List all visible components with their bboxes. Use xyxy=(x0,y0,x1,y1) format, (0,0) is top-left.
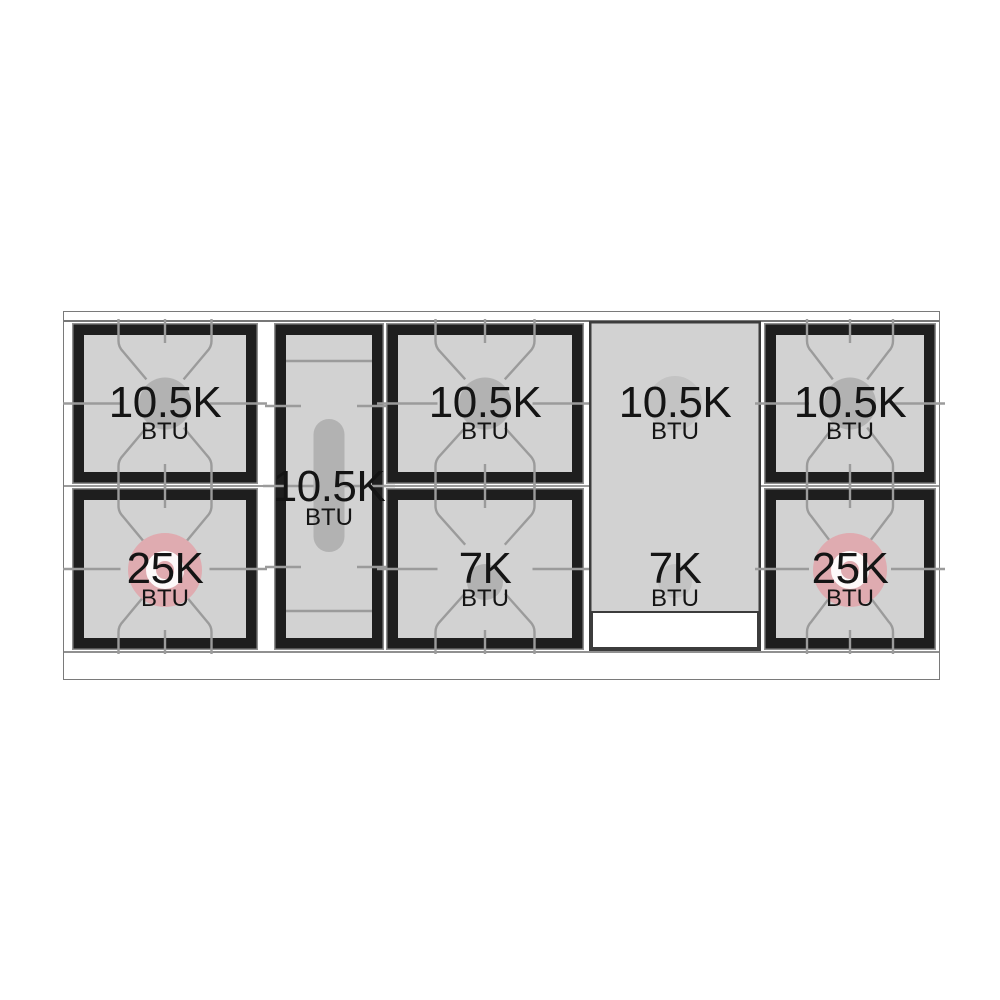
page: 10.5K BTU 25K BTU 10.5K BTU 10.5K BTU 7K… xyxy=(0,0,1000,1000)
burner-btu-unit: BTU xyxy=(95,587,235,611)
burner-btu-unit: BTU xyxy=(415,420,555,444)
burner-btu-unit: BTU xyxy=(780,420,920,444)
burner-btu-unit: BTU xyxy=(259,506,399,530)
burner-btu-unit: BTU xyxy=(415,587,555,611)
range-cooktop-diagram: 10.5K BTU 25K BTU 10.5K BTU 10.5K BTU 7K… xyxy=(63,311,940,680)
griddle-btu-unit: BTU xyxy=(605,420,745,444)
burner-btu-unit: BTU xyxy=(95,420,235,444)
burner-btu-unit: BTU xyxy=(780,587,920,611)
griddle-btu-unit: BTU xyxy=(605,587,745,611)
burner-btu-value: 10.5K xyxy=(259,465,399,509)
